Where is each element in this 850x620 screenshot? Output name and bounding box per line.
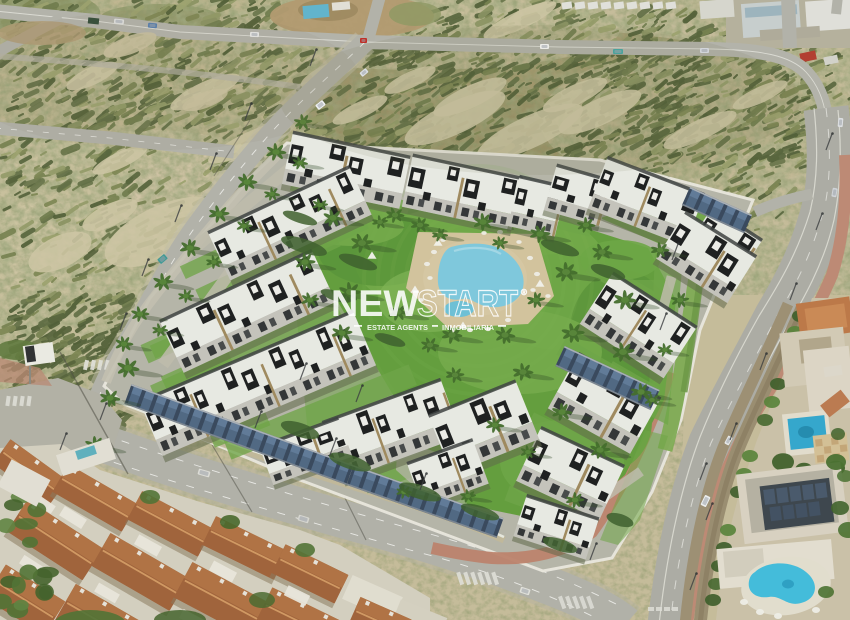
svg-text:NEW: NEW bbox=[331, 283, 419, 324]
svg-text:START: START bbox=[417, 283, 518, 324]
svg-text:®: ® bbox=[521, 288, 527, 297]
svg-text:INMOBILIARIA: INMOBILIARIA bbox=[442, 323, 494, 332]
svg-text:ESTATE AGENTS: ESTATE AGENTS bbox=[367, 323, 428, 332]
